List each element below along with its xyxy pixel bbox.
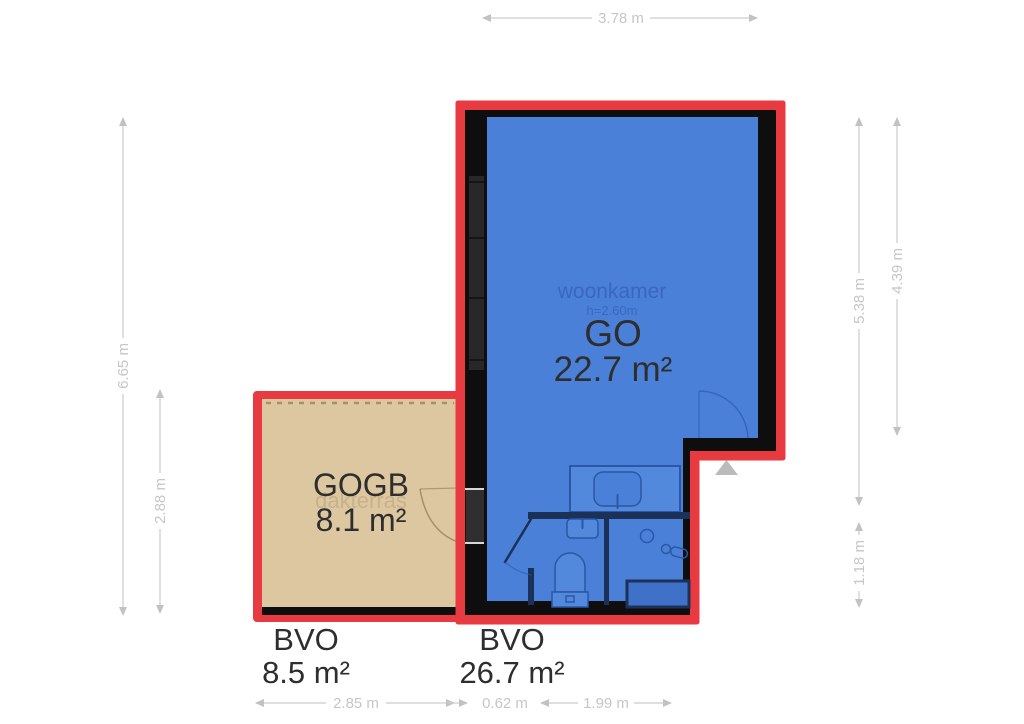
toilet-cistern xyxy=(552,592,588,607)
dimension-label-bottom-right: 1.99 m xyxy=(583,695,629,712)
usable-area-code-woonkamer: GO xyxy=(584,315,642,352)
dimension-label-right-inner: 4.39 m xyxy=(889,248,906,294)
shower-tray xyxy=(627,581,689,607)
dimension-label-bottom-left: 2.85 m xyxy=(333,695,379,712)
toilet-bowl xyxy=(555,553,585,592)
gross-area-code-dakterras: BVO xyxy=(273,624,338,655)
usable-area-value-woonkamer: 22.7 m² xyxy=(554,352,673,387)
bathroom-top-wall xyxy=(528,512,690,519)
terrace-bottom-wall xyxy=(262,607,458,615)
bathroom-left-wall xyxy=(528,568,534,605)
terrace-door-opening xyxy=(466,490,484,542)
gross-area-value-dakterras: 8.5 m² xyxy=(262,657,350,688)
room-name-woonkamer: woonkamer xyxy=(558,281,667,302)
gross-area-value-woonkamer: 26.7 m² xyxy=(459,657,564,688)
left-wall-window-strip xyxy=(469,176,484,370)
usable-area-value-dakterras: 8.1 m² xyxy=(316,504,407,536)
usable-area-code-dakterras: GOGB xyxy=(313,469,409,501)
bathroom-divider-wall xyxy=(604,519,609,605)
floorplan-canvas: 3.78 m 6.65 m 2.88 m 5.38 m xyxy=(0,0,1024,724)
dimension-label-left-inner: 2.88 m xyxy=(152,478,169,524)
dimension-label-right-outer: 5.38 m xyxy=(851,278,868,324)
dimension-label-bottom-center: 0.62 m xyxy=(482,695,528,712)
entrance-arrow-icon xyxy=(715,460,738,475)
dimension-label-top: 3.78 m xyxy=(598,10,644,27)
floorplan-drawing: 3.78 m 6.65 m 2.88 m 5.38 m xyxy=(0,0,1024,724)
dimension-label-right-lower: 1.18 m xyxy=(851,540,868,586)
dimension-label-left-outer: 6.65 m xyxy=(115,343,132,389)
gross-area-code-woonkamer: BVO xyxy=(479,624,544,655)
